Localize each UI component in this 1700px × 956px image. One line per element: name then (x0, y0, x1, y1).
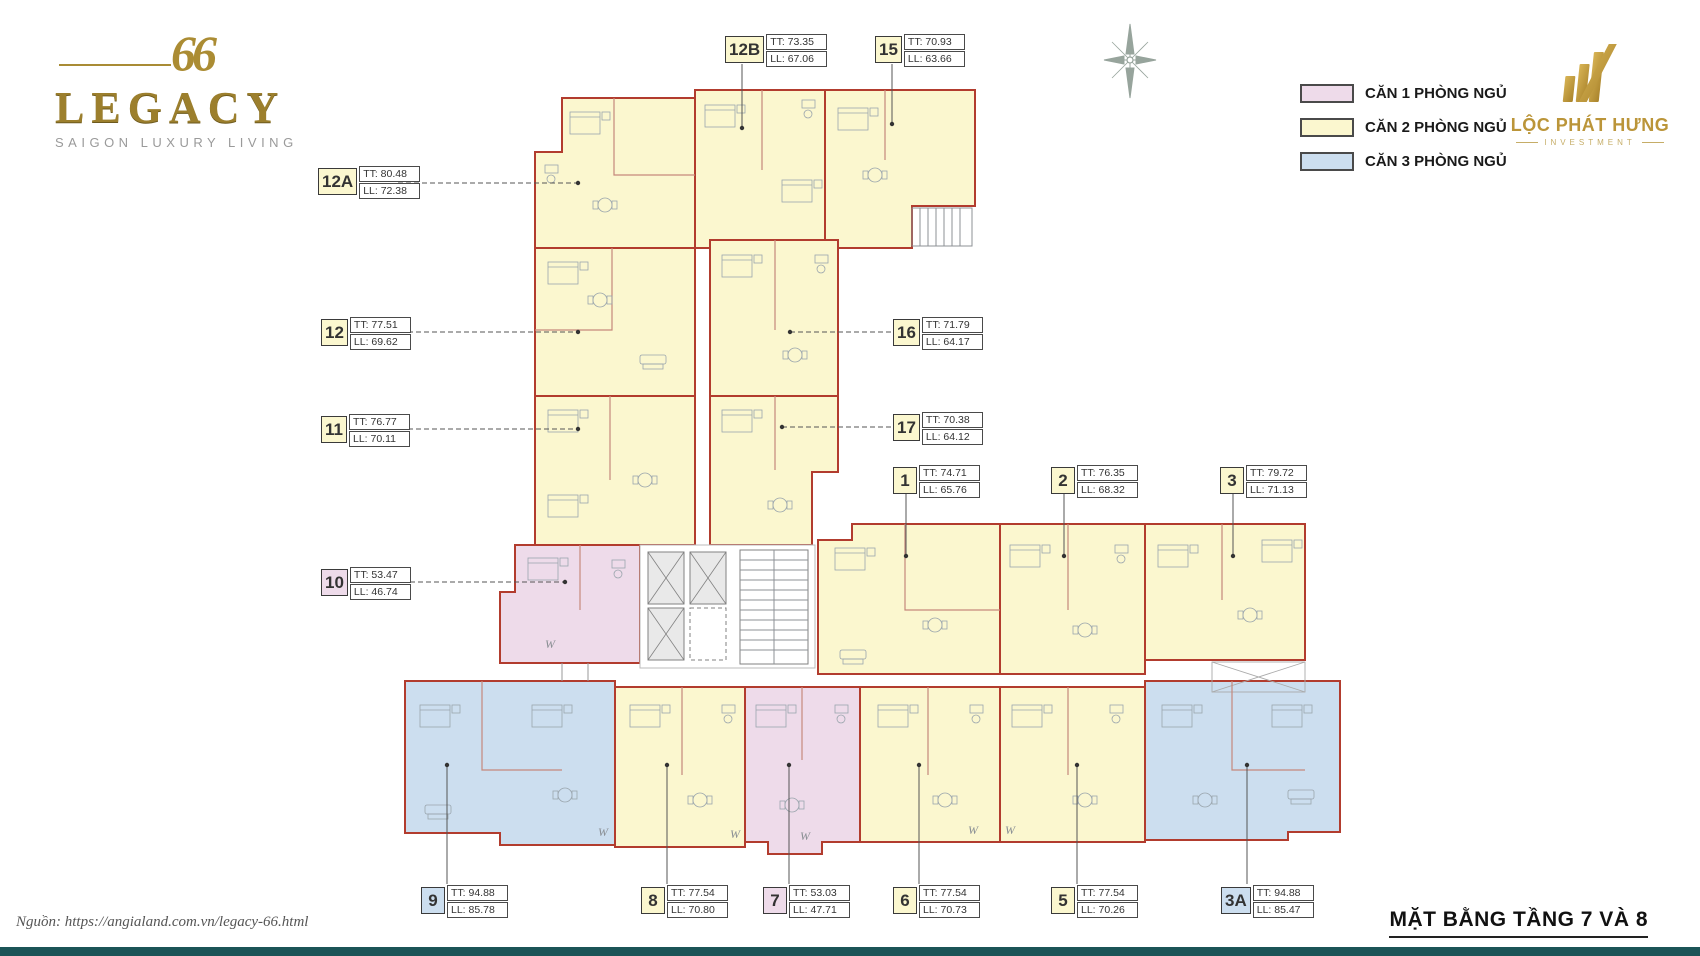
unit-3-number: 3 (1220, 467, 1244, 494)
unit-label-12: 12 TT: 77.51LL: 69.62 (321, 316, 411, 350)
unit-12-ll: LL: 69.62 (350, 334, 411, 350)
unit-9-tt: TT: 94.88 (447, 885, 508, 901)
unit-12-number: 12 (321, 319, 348, 346)
legacy-66-mark: 66 (171, 24, 213, 82)
unit-label-10: 10 TT: 53.47LL: 46.74 (321, 566, 411, 600)
legend-swatch-3br (1300, 152, 1354, 171)
unit-label-3A: 3A TT: 94.88LL: 85.47 (1221, 884, 1314, 918)
unit-label-12A: 12A TT: 80.48LL: 72.38 (318, 165, 420, 199)
unit-7-ll: LL: 47.71 (789, 902, 850, 918)
page: W W W W W W (0, 0, 1700, 956)
unit-6-number: 6 (893, 887, 917, 914)
legend-swatch-2br (1300, 118, 1354, 137)
unit-6-ll: LL: 70.73 (919, 902, 980, 918)
unit-label-16: 16 TT: 71.79LL: 64.17 (893, 316, 983, 350)
unit-12A-tt: TT: 80.48 (359, 166, 420, 182)
unit-7-tt: TT: 53.03 (789, 885, 850, 901)
svg-text:W: W (598, 825, 609, 839)
unit-label-15: 15 TT: 70.93LL: 63.66 (875, 33, 965, 67)
unit-2-area (1000, 524, 1145, 674)
unit-11-ll: LL: 70.11 (349, 431, 410, 447)
unit-11-area (535, 396, 695, 545)
unit-16-ll: LL: 64.17 (922, 334, 983, 350)
unit-label-11: 11 TT: 76.77LL: 70.11 (321, 413, 410, 447)
unit-5-number: 5 (1051, 887, 1075, 914)
stairs-core (740, 550, 808, 664)
developer-name: LỘC PHÁT HƯNG (1500, 115, 1680, 136)
developer-logo: LỘC PHÁT HƯNG INVESTMENT (1500, 42, 1680, 147)
source-note: Nguồn: https://angialand.com.vn/legacy-6… (16, 914, 308, 931)
unit-label-2: 2 TT: 76.35LL: 68.32 (1051, 464, 1138, 498)
unit-label-12B: 12B TT: 73.35LL: 67.06 (725, 33, 827, 67)
unit-12-area (535, 248, 695, 396)
unit-label-17: 17 TT: 70.38LL: 64.12 (893, 411, 983, 445)
unit-15-tt: TT: 70.93 (904, 34, 965, 50)
elevator-core (640, 545, 815, 668)
unit-15-ll: LL: 63.66 (904, 51, 965, 67)
unit-17-number: 17 (893, 414, 920, 441)
unit-9-number: 9 (421, 887, 445, 914)
unit-8-area (615, 687, 745, 847)
unit-8-ll: LL: 70.80 (667, 902, 728, 918)
unit-3-area (1145, 524, 1305, 660)
unit-3A-number: 3A (1221, 887, 1251, 914)
svg-text:W: W (800, 829, 811, 843)
unit-9-area (405, 681, 615, 845)
unit-12A-number: 12A (318, 168, 357, 195)
legacy-tagline: SAIGON LUXURY LIVING (55, 135, 315, 150)
unit-11-tt: TT: 76.77 (349, 414, 410, 430)
unit-12B-tt: TT: 73.35 (766, 34, 827, 50)
legend-item-3br: CĂN 3 PHÒNG NGỦ (1300, 150, 1507, 172)
svg-text:W: W (730, 827, 741, 841)
developer-logo-mark (1557, 42, 1623, 106)
svg-text:W: W (545, 637, 556, 651)
unit-17-ll: LL: 64.12 (922, 429, 983, 445)
unit-1-tt: TT: 74.71 (919, 465, 980, 481)
unit-17-tt: TT: 70.38 (922, 412, 983, 428)
unit-label-3: 3 TT: 79.72LL: 71.13 (1220, 464, 1307, 498)
legend-item-2br: CĂN 2 PHÒNG NGỦ (1300, 116, 1507, 138)
unit-7-number: 7 (763, 887, 787, 914)
legend-label-3br: CĂN 3 PHÒNG NGỦ (1365, 153, 1507, 170)
unit-label-6: 6 TT: 77.54LL: 70.73 (893, 884, 980, 918)
unit-12B-number: 12B (725, 36, 764, 63)
legacy-logo-line (59, 64, 171, 66)
unit-9-ll: LL: 85.78 (447, 902, 508, 918)
unit-2-tt: TT: 76.35 (1077, 465, 1138, 481)
unit-1-number: 1 (893, 467, 917, 494)
unit-12A-ll: LL: 72.38 (359, 183, 420, 199)
unit-10-number: 10 (321, 569, 348, 596)
unit-1-ll: LL: 65.76 (919, 482, 980, 498)
unit-12B-area (695, 90, 825, 248)
svg-text:W: W (968, 823, 979, 837)
unit-12A-area (535, 98, 695, 248)
legend-label-1br: CĂN 1 PHÒNG NGỦ (1365, 85, 1507, 102)
unit-10-tt: TT: 53.47 (350, 567, 411, 583)
developer-subtitle: INVESTMENT (1500, 138, 1680, 147)
connectors (562, 663, 588, 681)
legend-label-2br: CĂN 2 PHÒNG NGỦ (1365, 119, 1507, 136)
unit-6-tt: TT: 77.54 (919, 885, 980, 901)
unit-3A-ll: LL: 85.47 (1253, 902, 1314, 918)
unit-8-tt: TT: 77.54 (667, 885, 728, 901)
unit-16-tt: TT: 71.79 (922, 317, 983, 333)
unit-15-number: 15 (875, 36, 902, 63)
unit-16-number: 16 (893, 319, 920, 346)
unit-10-area (500, 545, 640, 663)
unit-label-9: 9 TT: 94.88LL: 85.78 (421, 884, 508, 918)
unit-10-ll: LL: 46.74 (350, 584, 411, 600)
unit-2-number: 2 (1051, 467, 1075, 494)
unit-5-ll: LL: 70.26 (1077, 902, 1138, 918)
legacy-wordmark: LEGACY (55, 82, 315, 133)
unit-3-ll: LL: 71.13 (1246, 482, 1307, 498)
svg-text:W: W (1005, 823, 1016, 837)
unit-5-tt: TT: 77.54 (1077, 885, 1138, 901)
unit-label-7: 7 TT: 53.03LL: 47.71 (763, 884, 850, 918)
legend-item-1br: CĂN 1 PHÒNG NGỦ (1300, 82, 1507, 104)
unit-11-number: 11 (321, 416, 347, 443)
legacy-logo: 66 LEGACY SAIGON LUXURY LIVING (55, 30, 315, 150)
stairs-top (912, 208, 972, 246)
unit-label-5: 5 TT: 77.54LL: 70.26 (1051, 884, 1138, 918)
legend-swatch-1br (1300, 84, 1354, 103)
legend: CĂN 1 PHÒNG NGỦ CĂN 2 PHÒNG NGỦ CĂN 3 PH… (1300, 82, 1507, 184)
unit-12B-ll: LL: 67.06 (766, 51, 827, 67)
unit-1-area (818, 524, 1000, 674)
footer-accent-bar (0, 947, 1700, 956)
unit-label-1: 1 TT: 74.71LL: 65.76 (893, 464, 980, 498)
unit-8-number: 8 (641, 887, 665, 914)
compass-rose-icon (1104, 24, 1156, 98)
unit-3-tt: TT: 79.72 (1246, 465, 1307, 481)
unit-12-tt: TT: 77.51 (350, 317, 411, 333)
page-title: MẶT BẰNG TẦNG 7 VÀ 8 (1389, 908, 1648, 938)
unit-label-8: 8 TT: 77.54LL: 70.80 (641, 884, 728, 918)
unit-3A-tt: TT: 94.88 (1253, 885, 1314, 901)
unit-17-area (710, 396, 838, 545)
unit-2-ll: LL: 68.32 (1077, 482, 1138, 498)
